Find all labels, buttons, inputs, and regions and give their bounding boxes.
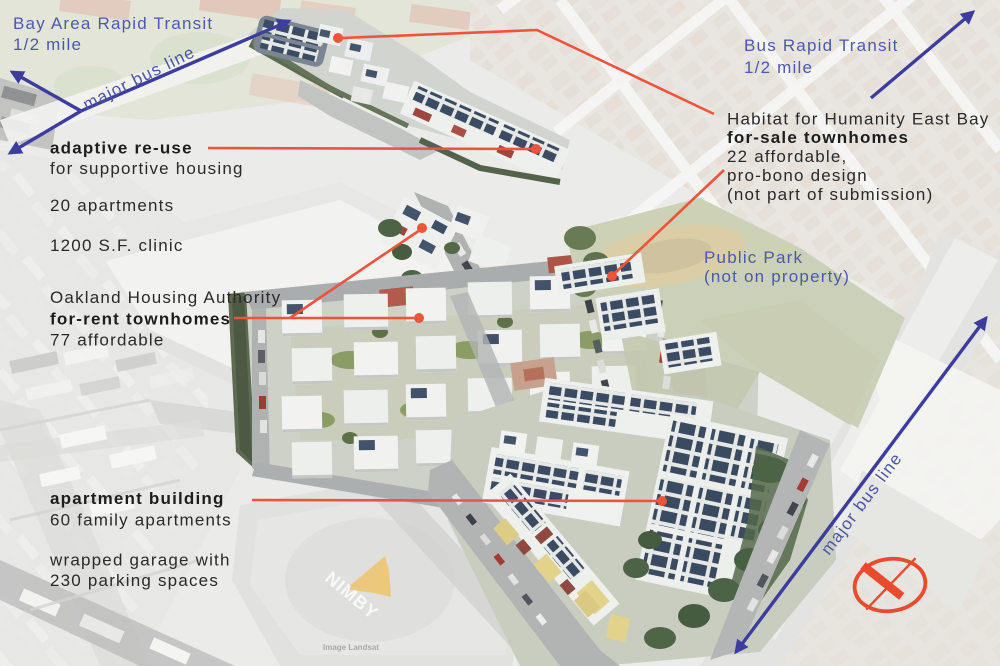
svg-text:60 family apartments: 60 family apartments [50, 511, 232, 530]
svg-text:(not on property): (not on property) [704, 267, 850, 286]
svg-text:adaptive re-use: adaptive re-use [50, 139, 193, 158]
svg-text:(not part of submission): (not part of submission) [727, 185, 933, 204]
svg-text:Oakland Housing Authority: Oakland Housing Authority [50, 288, 281, 307]
svg-text:wrapped garage with: wrapped garage with [49, 551, 231, 570]
svg-text:apartment building: apartment building [50, 489, 225, 508]
svg-text:1200 S.F. clinic: 1200 S.F. clinic [50, 236, 184, 255]
svg-text:Habitat for Humanity East Bay: Habitat for Humanity East Bay [727, 110, 990, 129]
svg-text:1/2 mile: 1/2 mile [744, 58, 813, 77]
svg-text:20 apartments: 20 apartments [50, 196, 174, 215]
svg-text:230 parking spaces: 230 parking spaces [50, 571, 219, 590]
svg-text:Bus Rapid Transit: Bus Rapid Transit [744, 36, 899, 55]
svg-text:pro-bono design: pro-bono design [727, 166, 868, 185]
svg-text:for supportive housing: for supportive housing [50, 159, 244, 178]
svg-text:for-sale townhomes: for-sale townhomes [727, 128, 909, 147]
svg-text:for-rent townhomes: for-rent townhomes [50, 310, 231, 329]
svg-text:22 affordable,: 22 affordable, [727, 147, 847, 166]
svg-text:Public Park: Public Park [704, 248, 803, 267]
svg-text:1/2 mile: 1/2 mile [13, 35, 82, 54]
svg-text:Bay Area Rapid Transit: Bay Area Rapid Transit [13, 14, 213, 33]
svg-text:Image Landsat: Image Landsat [323, 643, 379, 652]
svg-text:77 affordable: 77 affordable [50, 331, 165, 350]
